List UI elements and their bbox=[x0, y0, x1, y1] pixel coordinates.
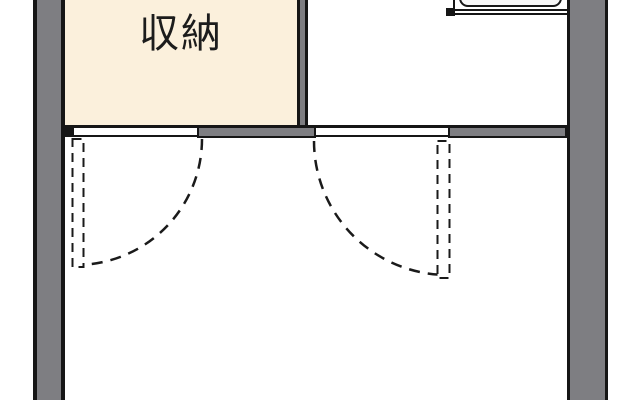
door-opening-sill-left bbox=[74, 135, 198, 137]
door-opening-sill-right bbox=[316, 135, 448, 137]
sink-counter-edge bbox=[451, 9, 568, 15]
lower-room bbox=[65, 138, 567, 400]
wall-partition bbox=[297, 0, 308, 128]
wall-middle-segment-left bbox=[197, 128, 316, 138]
kitchen-sink-icon bbox=[459, 0, 562, 7]
sink-counter-endcap bbox=[446, 8, 455, 16]
wall-left bbox=[33, 0, 65, 400]
wall-right bbox=[567, 0, 608, 400]
door-jamb-left bbox=[61, 125, 74, 137]
storage-room-label: 収納 bbox=[65, 12, 297, 56]
wall-middle-segment-right bbox=[448, 128, 567, 138]
storage-room: 収納 bbox=[65, 0, 297, 125]
upper-right-room bbox=[308, 0, 567, 125]
floorplan-canvas: 収納 bbox=[0, 0, 640, 400]
